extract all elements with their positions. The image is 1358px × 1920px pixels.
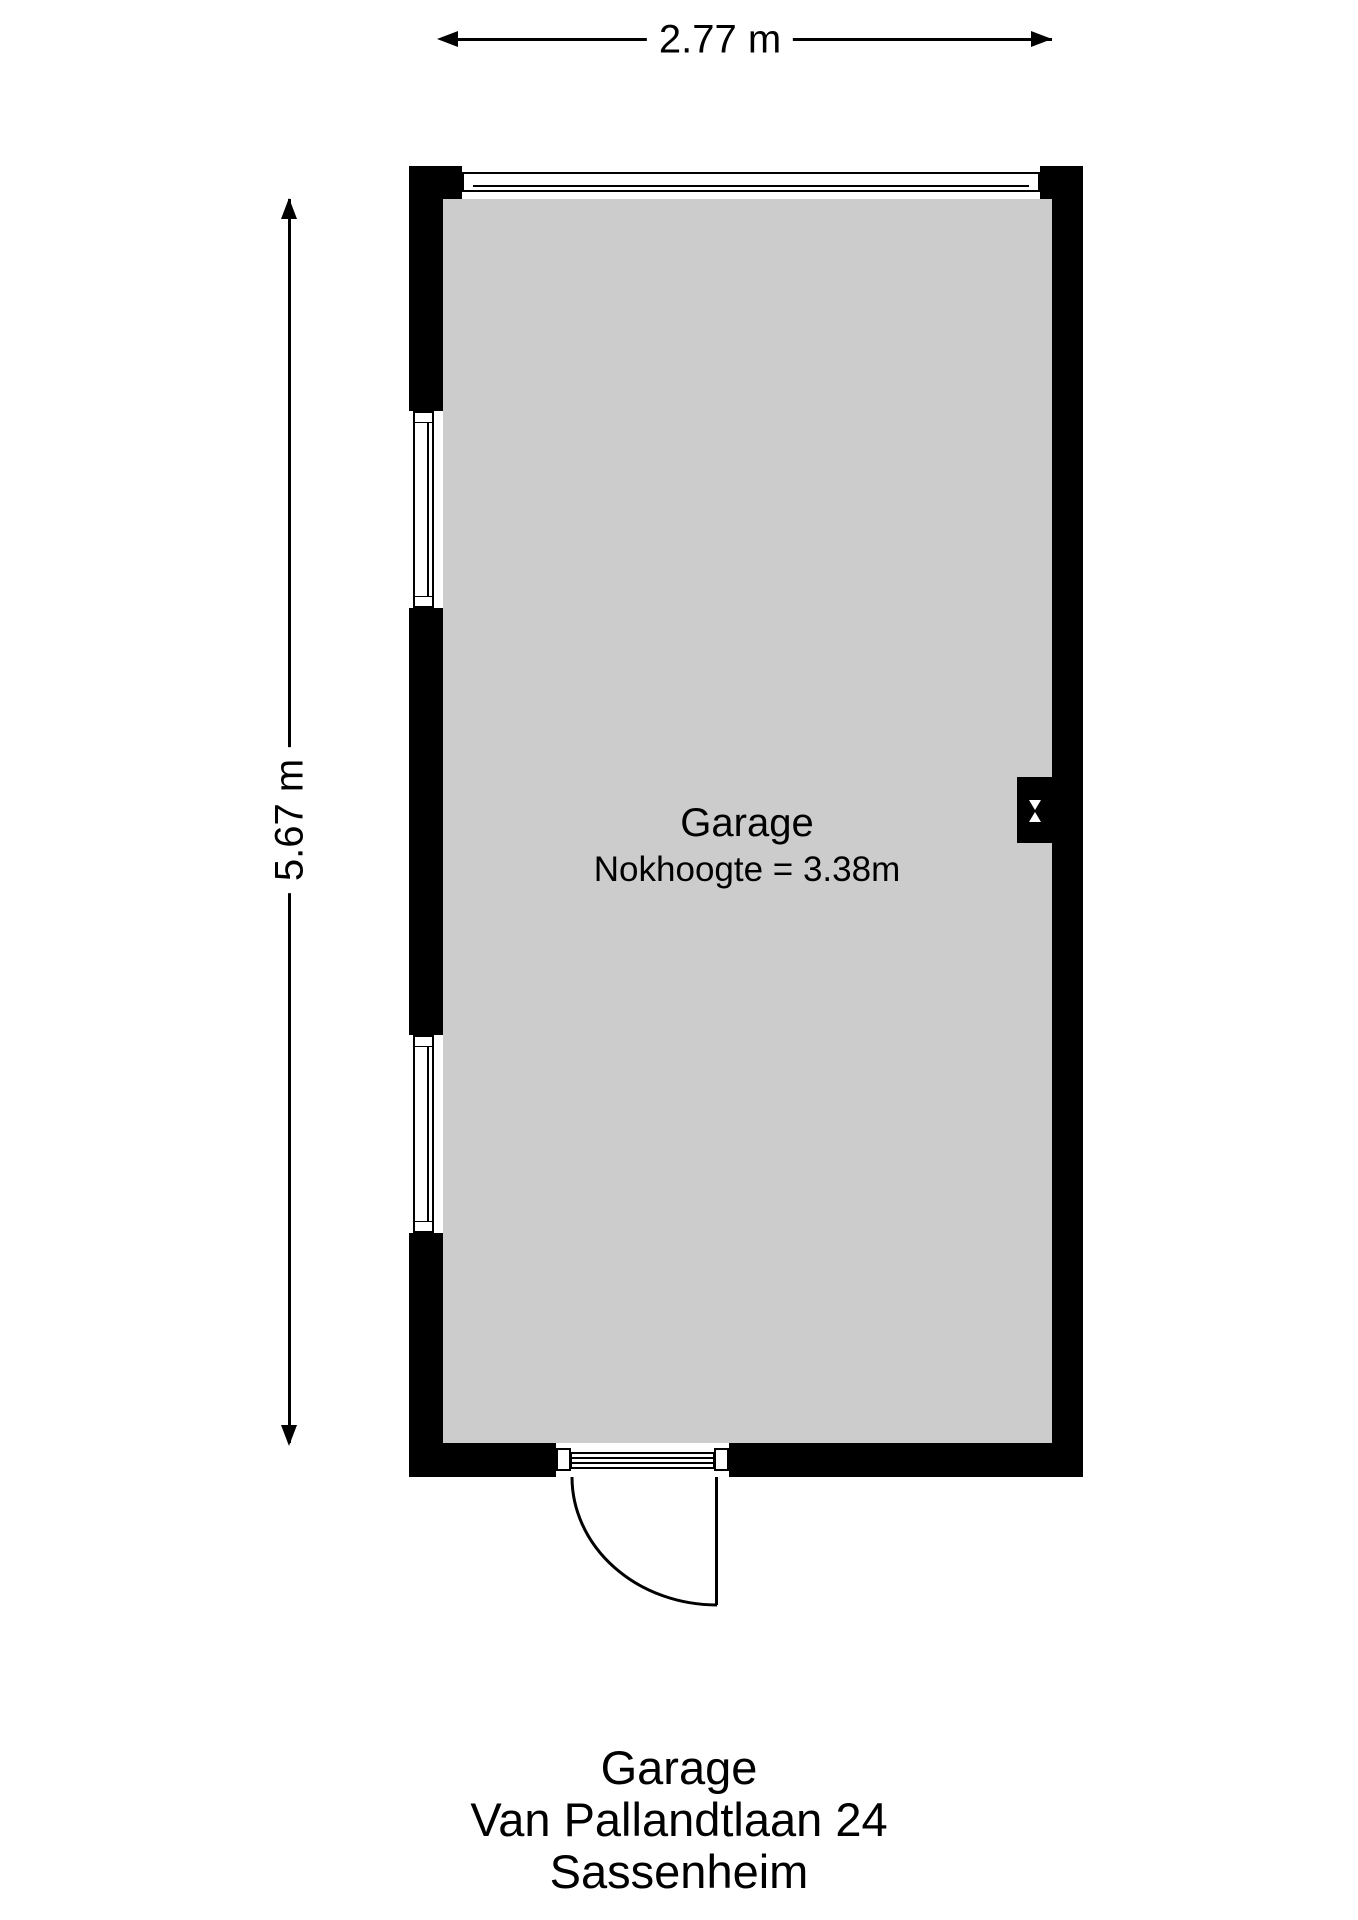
window-left-lower-glazing (413, 1047, 434, 1221)
wall-left-middle (409, 608, 443, 1035)
dimension-width-arrow-left-icon (437, 31, 458, 47)
vent-box (1017, 777, 1052, 843)
door-leaf-open (715, 1477, 718, 1605)
wall-corner-top-right (1040, 166, 1083, 199)
window-left-lower-frame-bottom (413, 1220, 434, 1233)
door-frame-left (556, 1448, 571, 1471)
wall-corner-top-left (409, 166, 462, 199)
door-leaf-line (572, 1462, 713, 1464)
dimension-height-arrow-bottom-icon (281, 1425, 297, 1446)
window-left-lower-glass-line (427, 1047, 429, 1221)
room-name: Garage (594, 801, 900, 845)
door-frame-right (714, 1448, 729, 1471)
door-leaf-line (572, 1457, 713, 1459)
wall-bottom-left (409, 1443, 556, 1477)
room-label: Garage Nokhoogte = 3.38m (594, 801, 900, 894)
dimension-width-label: 2.77 m (647, 18, 793, 63)
room-ridge-height: Nokhoogte = 3.38m (594, 845, 900, 894)
wall-right (1052, 199, 1083, 1443)
vent-hourglass-icon (1029, 800, 1041, 810)
floor-plan-page: 2.77 m 5.67 m Garage Nokhoogte = 3.38m G… (0, 0, 1358, 1920)
vent-hourglass-icon (1029, 812, 1041, 822)
wall-left-upper (409, 199, 443, 411)
wall-bottom-right (729, 1443, 1083, 1477)
dimension-height-label: 5.67 m (268, 747, 313, 893)
caption-title: Garage (0, 1742, 1358, 1794)
window-left-upper-glazing (413, 423, 434, 596)
window-left-upper-glass-line (427, 423, 429, 596)
dimension-width-arrow-right-icon (1031, 31, 1052, 47)
window-left-upper-frame-bottom (413, 595, 434, 608)
door-leaf-closed (570, 1452, 715, 1469)
wall-left-lower (409, 1233, 443, 1443)
plan-caption: Garage Van Pallandtlaan 24 Sassenheim (0, 1742, 1358, 1898)
caption-address: Van Pallandtlaan 24 (0, 1794, 1358, 1846)
window-top-glass-line (473, 185, 1029, 187)
caption-city: Sassenheim (0, 1846, 1358, 1898)
window-top-glazing (473, 172, 1029, 192)
dimension-height-arrow-top-icon (281, 198, 297, 219)
